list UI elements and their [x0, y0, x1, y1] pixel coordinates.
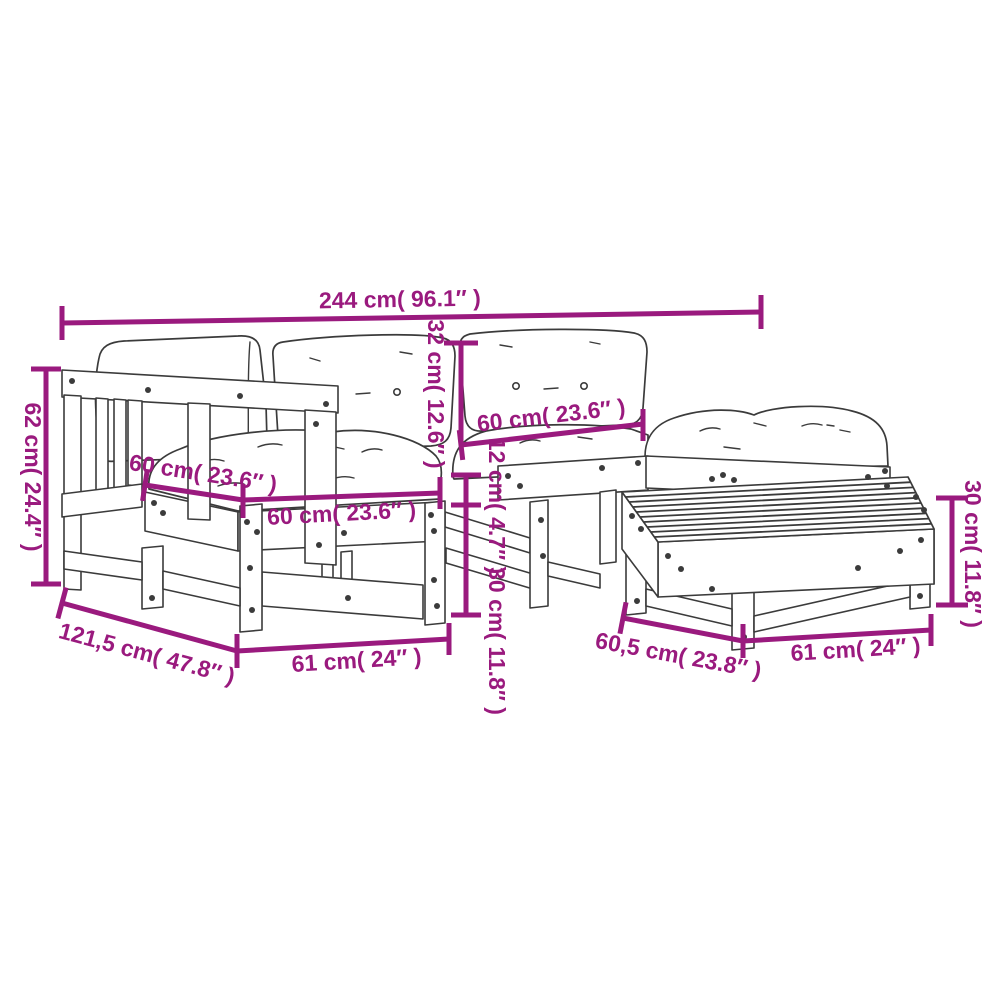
dim-back-cushion-height-label: 32 cm( 12.6″ ) [423, 319, 449, 468]
dimension-backrest-height: 62 cm( 24.4″ ) [20, 369, 61, 584]
stretcher [163, 571, 240, 606]
corner-post [305, 410, 336, 565]
dimension-total-width: 244 cm( 96.1″ ) [62, 285, 761, 340]
dim-total-width-label: 244 cm( 96.1″ ) [319, 285, 481, 314]
backrest-slat [96, 398, 108, 492]
dim-line [62, 312, 761, 323]
cushion-button [581, 383, 587, 389]
product-dimension-diagram: 244 cm( 96.1″ ) 62 cm( 24.4″ ) 32 cm( 12… [0, 0, 1000, 1000]
side-table [622, 477, 934, 650]
diagram-canvas: 244 cm( 96.1″ ) 62 cm( 24.4″ ) 32 cm( 12… [0, 0, 1000, 1000]
dim-backrest-height-label: 62 cm( 24.4″ ) [20, 402, 46, 551]
cushion-button [394, 389, 400, 395]
leg [530, 500, 548, 608]
dimension-table-height: 30 cm( 11.8″ ) [936, 480, 986, 628]
backrest-slat [114, 399, 126, 490]
cushion-button [513, 383, 519, 389]
leg [600, 490, 616, 564]
dim-cushion-thickness-label: 12 cm( 4.7″ ) [484, 438, 510, 574]
stretcher [548, 562, 600, 588]
dim-seat-height-label: 30 cm( 11.8″ ) [484, 567, 510, 715]
dimension-seat-width: 61 cm( 24″ ) [237, 623, 449, 677]
dim-tick [620, 602, 626, 633]
dim-tick [459, 430, 462, 460]
dim-table-height-label: 30 cm( 11.8″ ) [960, 480, 986, 628]
bottom-front-rail [262, 572, 423, 619]
